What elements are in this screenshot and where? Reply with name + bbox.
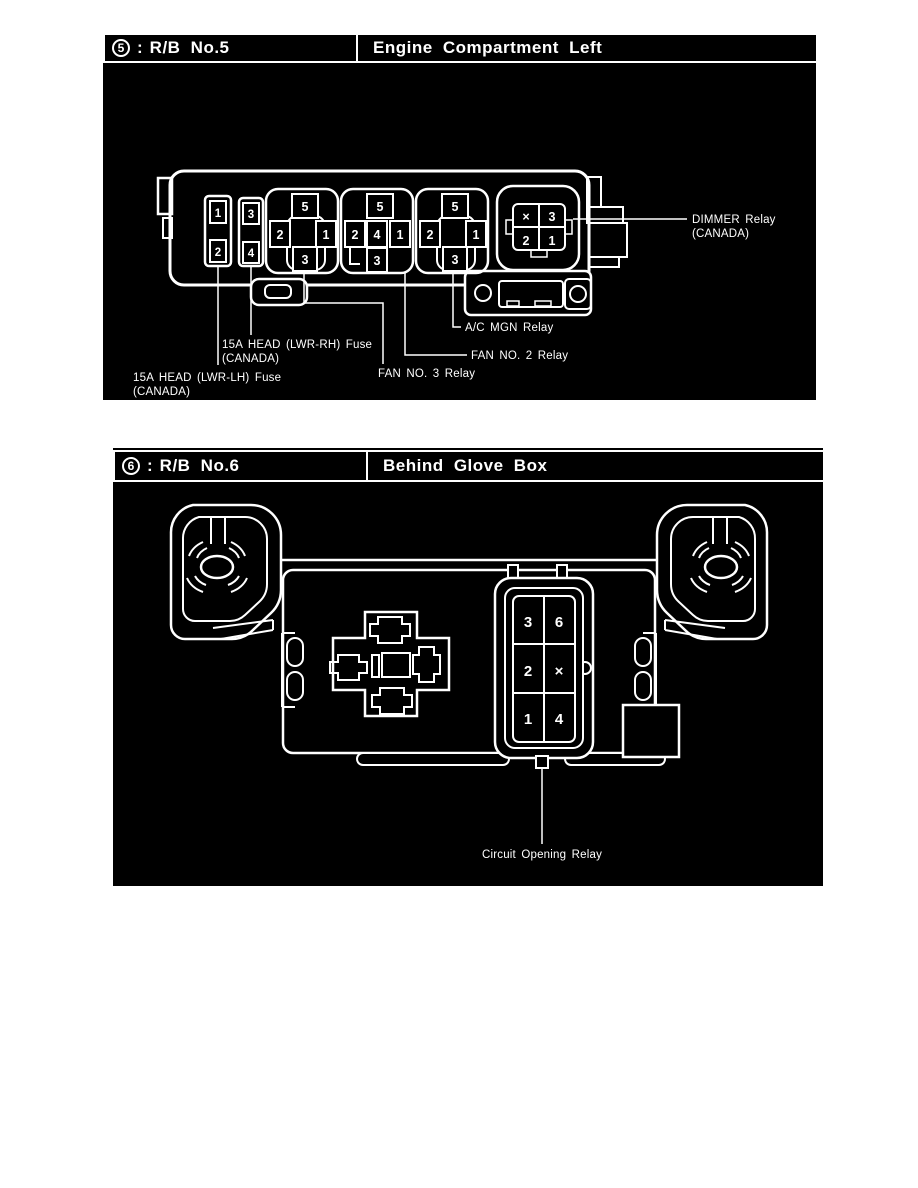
socket-pin: 3 [302, 253, 309, 267]
relay-socket-dimmer: × 3 2 1 [497, 186, 579, 270]
rb5-diagram: 1 2 3 4 5 2 1 3 [103, 59, 816, 400]
relay-box-id: R/B No.6 [160, 456, 240, 476]
label-head-lh-canada: (CANADA) [133, 386, 190, 398]
panel-rb6-title-left: 6 : R/B No.6 [113, 452, 368, 480]
label-head-rh-canada: (CANADA) [222, 353, 279, 365]
label-dimmer-relay-canada: (CANADA) [692, 228, 749, 240]
panel-rb6-title: 6 : R/B No.6 Behind Glove Box [113, 450, 823, 482]
label-fan-no2-relay: FAN NO. 2 Relay [471, 350, 568, 362]
left-mounting-bracket [171, 505, 281, 639]
fuse-head-lwr-rh: 3 4 [239, 198, 263, 266]
cross-relay-socket [330, 612, 449, 716]
socket-pin: 2 [352, 228, 359, 242]
socket-pin: 5 [302, 200, 309, 214]
panel-rb6: 6 : R/B No.6 Behind Glove Box [113, 448, 823, 886]
socket-pin: 2 [277, 228, 284, 242]
title-colon: : [147, 456, 153, 476]
relay-pin: 1 [524, 711, 532, 728]
relay-pin: 6 [555, 614, 563, 631]
relay-pin: 2 [524, 663, 532, 680]
socket-pin: 1 [473, 228, 480, 242]
relay-socket-ac-mgn: 5 2 1 3 [416, 189, 488, 273]
label-head-lh-fuse: 15A HEAD (LWR-LH) Fuse [133, 372, 281, 384]
relay-box-id: R/B No.5 [150, 38, 230, 58]
relay-box-location: Engine Compartment Left [373, 38, 602, 58]
circled-number-badge: 5 [112, 39, 130, 57]
relay-pin: 3 [524, 614, 532, 631]
socket-pin: 2 [427, 228, 434, 242]
panel-rb5-title-right: Engine Compartment Left [358, 35, 602, 61]
panel-rb6-title-right: Behind Glove Box [368, 452, 547, 480]
label-ac-mgn-relay: A/C MGN Relay [465, 322, 553, 334]
relay-pin: 4 [555, 711, 564, 728]
panel-rb5-title-left: 5 : R/B No.5 [103, 35, 358, 61]
title-colon: : [137, 38, 143, 58]
socket-pin: 2 [523, 234, 530, 248]
bottom-lip [357, 753, 509, 765]
fuse-pin: 2 [215, 247, 221, 259]
relay-socket-fan2: 5 2 4 1 3 [341, 189, 413, 273]
fuse-pin: 4 [248, 248, 255, 260]
socket-pin: 3 [374, 254, 381, 268]
socket-pin: 4 [374, 228, 381, 242]
socket-pin: 1 [323, 228, 330, 242]
relay-pin: × [555, 663, 564, 680]
right-connector [587, 177, 627, 267]
circled-number-badge: 6 [122, 457, 140, 475]
corner-box [623, 705, 679, 757]
rb6-diagram: 3 6 2 × 1 4 Circuit Opening Relay [113, 480, 823, 886]
fuse-pin: 3 [248, 209, 254, 221]
socket-pin: 1 [397, 228, 404, 242]
socket-pin: 3 [549, 210, 556, 224]
relay-box-location: Behind Glove Box [383, 456, 547, 476]
label-circuit-opening-relay: Circuit Opening Relay [482, 849, 602, 861]
label-head-rh-fuse: 15A HEAD (LWR-RH) Fuse [222, 339, 372, 351]
socket-pin: × [522, 210, 529, 224]
bottom-left-tab [251, 279, 307, 305]
socket-pin: 5 [452, 200, 459, 214]
left-inner-connector [282, 633, 303, 707]
right-inner-connector [623, 633, 679, 757]
socket-pin: 5 [377, 200, 384, 214]
label-fan-no3-relay: FAN NO. 3 Relay [378, 368, 475, 380]
fuse-pin: 1 [215, 208, 222, 220]
panel-rb5: 5 : R/B No.5 Engine Compartment Left [103, 33, 816, 400]
label-dimmer-relay: DIMMER Relay [692, 214, 776, 226]
fuse-head-lwr-lh: 1 2 [205, 196, 231, 266]
relay-socket-fan3: 5 2 1 3 [266, 189, 338, 273]
socket-pin: 1 [549, 234, 556, 248]
manual-page: 5 : R/B No.5 Engine Compartment Left [0, 0, 918, 1188]
bottom-right-connector [465, 271, 591, 315]
circuit-opening-relay-socket: 3 6 2 × 1 4 [495, 565, 593, 768]
right-mounting-bracket [657, 505, 767, 639]
socket-pin: 3 [452, 253, 459, 267]
